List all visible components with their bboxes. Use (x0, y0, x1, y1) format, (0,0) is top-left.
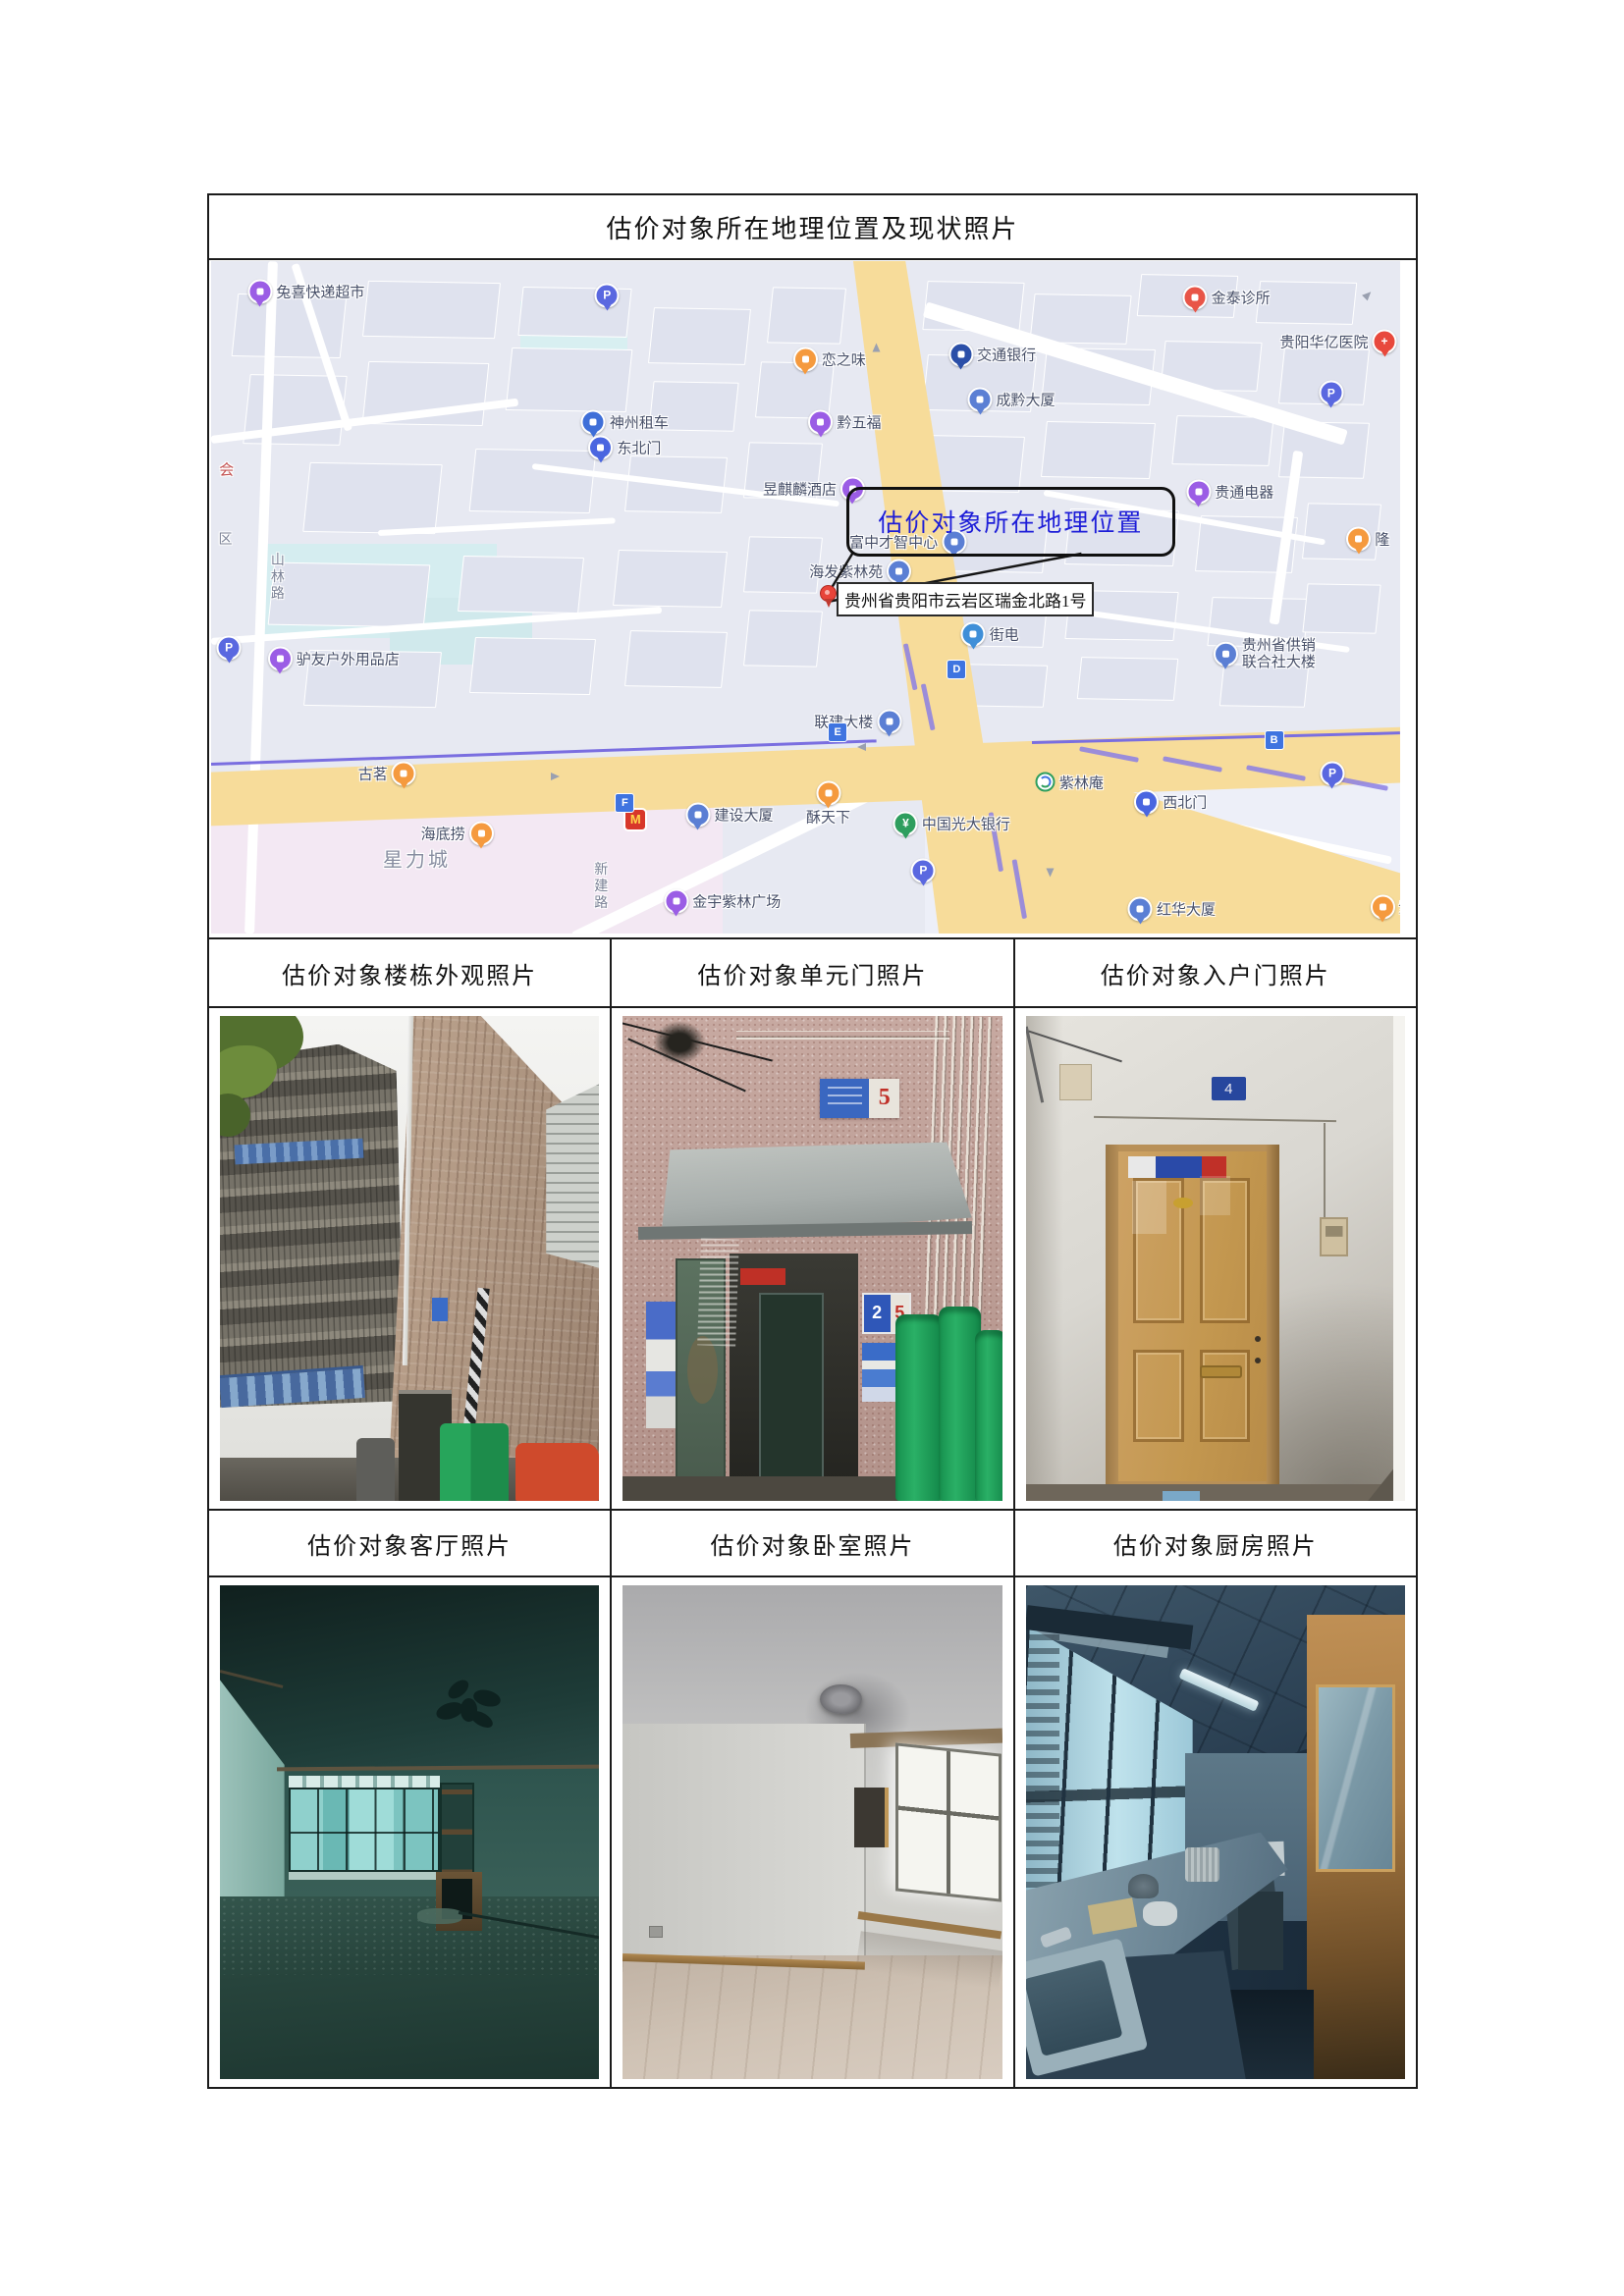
wall-shadow (1026, 1016, 1064, 1501)
floor-debris (220, 1896, 599, 1975)
striped-bucket (1185, 1847, 1219, 1882)
street-plate: 5 (820, 1079, 899, 1118)
rust-patch (687, 1336, 718, 1404)
photo-cell-kitchen (1013, 1577, 1416, 2087)
floor-litter (1163, 1491, 1201, 1501)
appraisal-photo-page: 估价对象所在地理位置及现状照片 兔喜快递超市恋之味交通银行金泰诊所贵阳华亿医院+… (0, 0, 1624, 2296)
intercom-box (1320, 1217, 1348, 1256)
wall-outlet (649, 1926, 663, 1938)
brass-plate (1173, 1198, 1192, 1208)
photo-cell-building-exterior (209, 1008, 610, 1509)
photo-kitchen (1026, 1585, 1405, 2079)
header-living-room: 估价对象客厅照片 (307, 1526, 512, 1561)
location-callout: 估价对象所在地理位置 (846, 487, 1175, 556)
ceiling-lamp (820, 1684, 861, 1714)
junction-box (1059, 1064, 1092, 1100)
neighbor-building (546, 1084, 599, 1268)
drip-stains (697, 1239, 738, 1347)
photo-row-2 (209, 1577, 1416, 2087)
photo-cell-bedroom (610, 1577, 1012, 2087)
scuff-mark (1132, 1181, 1166, 1234)
floor (1026, 1484, 1405, 1501)
photo-bedroom (623, 1585, 1001, 2079)
callout-leader-lines (211, 261, 1400, 934)
header-row-1: 估价对象楼栋外观照片 估价对象单元门照片 估价对象入户门照片 (209, 939, 1416, 1008)
door-panel (1200, 1350, 1250, 1442)
wire-tangle (653, 1021, 706, 1064)
door-mat (417, 1908, 462, 1923)
street-plate-blue (820, 1079, 869, 1118)
header-row-2: 估价对象客厅照片 估价对象卧室照片 估价对象厨房照片 (209, 1511, 1416, 1577)
location-map: 兔喜快递超市恋之味交通银行金泰诊所贵阳华亿医院+成黔大厦神州租车东北门昱麒麟酒店… (211, 261, 1400, 934)
partition-glass (1316, 1684, 1395, 1872)
street-plate-number: 5 (869, 1079, 899, 1118)
chandelier-leaf (468, 1707, 496, 1731)
photo-table: 估价对象所在地理位置及现状照片 兔喜快递超市恋之味交通银行金泰诊所贵阳华亿医院+… (207, 193, 1418, 2089)
unit-plate-number: 2 (864, 1295, 891, 1332)
sink-basin (1026, 1960, 1123, 2057)
header-entry-door: 估价对象入户门照片 (1101, 956, 1330, 990)
photo-row-1: 5 2 5 (209, 1008, 1416, 1511)
photo-entry-door: 4 (1026, 1016, 1405, 1501)
wall-cabinet (854, 1788, 889, 1846)
posters (646, 1302, 680, 1427)
photo-building-exterior (220, 1016, 599, 1501)
photo-cell-entry-door: 4 (1013, 1008, 1416, 1509)
header-unit-door: 估价对象单元门照片 (697, 956, 927, 990)
window-sill (289, 1872, 441, 1880)
chair-silhouette (1238, 1892, 1283, 1970)
gas-tank (895, 1314, 943, 1501)
address-label: 贵州省贵阳市云岩区瑞金北路1号 (837, 582, 1095, 616)
door-panel (1133, 1350, 1183, 1442)
crumpled-paper (1143, 1901, 1177, 1926)
header-kitchen: 估价对象厨房照片 (1113, 1526, 1318, 1561)
scuff-mark (1200, 1176, 1230, 1215)
ground (623, 1476, 911, 1501)
photo-unit-door: 5 2 5 (623, 1016, 1001, 1501)
photo-cell-living-room (209, 1577, 610, 2087)
red-scooter (515, 1443, 599, 1501)
left-wall (623, 1724, 865, 1960)
photo-living-room (220, 1585, 599, 2079)
living-room-window (289, 1788, 441, 1872)
gas-tank (975, 1330, 1002, 1501)
green-gas-tanks (895, 1307, 1001, 1501)
window-top-louver (289, 1776, 441, 1789)
blue-sign (432, 1298, 447, 1322)
gray-scooter (356, 1438, 395, 1501)
header-bedroom: 估价对象卧室照片 (710, 1526, 914, 1561)
table-title-row: 估价对象所在地理位置及现状照片 (209, 195, 1416, 260)
door-number-plate: 4 (1212, 1077, 1246, 1101)
chandelier (436, 1680, 501, 1743)
green-bins (440, 1423, 509, 1501)
page-title: 估价对象所在地理位置及现状照片 (606, 209, 1018, 245)
kettle (1128, 1874, 1159, 1898)
wall-pipes (736, 1031, 948, 1040)
mail-slot (1200, 1365, 1241, 1378)
header-building-exterior: 估价对象楼栋外观照片 (282, 956, 537, 990)
ceiling-stain (775, 1634, 927, 1734)
bedroom-window (895, 1742, 1001, 1901)
bright-edge (1393, 1016, 1405, 1501)
red-sign (740, 1268, 785, 1285)
chandelier-leaf (434, 1700, 464, 1723)
map-row: 兔喜快递超市恋之味交通银行金泰诊所贵阳华亿医院+成黔大厦神州租车东北门昱麒麟酒店… (209, 260, 1416, 939)
photo-cell-unit-door: 5 2 5 (610, 1008, 1012, 1509)
ceiling (220, 1585, 599, 1773)
unit-door (759, 1293, 824, 1501)
